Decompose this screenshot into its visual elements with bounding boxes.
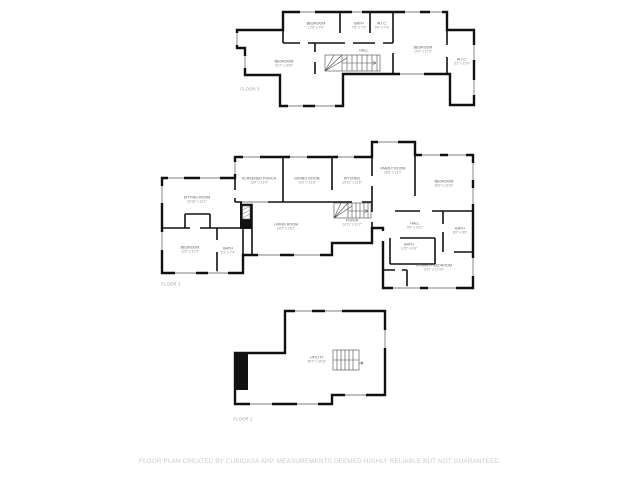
room-name: HALL [359, 49, 368, 54]
room-label-bath3: BATH 7'6" x 7'6" [352, 22, 366, 31]
room-dims: 5'1" x 7'4" [221, 251, 235, 255]
room-label-bedroom-small: BEDROOM 12'6" x 7'6" [307, 22, 326, 31]
room-dims: 5'5" x 7'4" [375, 26, 389, 30]
room-label-primary-bedroom: PRIMARY BEDROOM 24'1" x 17'10" [416, 264, 452, 273]
room-label-bath-right: BATH 8'6" x 9'9" [453, 227, 467, 236]
floor1-label: FLOOR 1 [233, 417, 252, 422]
room-label-wic-small: W.I.C. 5'5" x 7'4" [375, 22, 389, 31]
chimney-icon-floor1 [236, 353, 248, 390]
floor2-label: FLOOR 2 [161, 282, 180, 287]
room-label-family-room: FAMILY ROOM 16'9" x 21'1" [380, 167, 405, 176]
room-label-utility: UTILITY 36'7" x 24'11" [307, 356, 327, 365]
room-label-wic-right3: W.I.C. 5'1" x 10'9" [454, 58, 470, 67]
room-dims: 13'2" x 11'4" [181, 250, 199, 254]
room-dims: 15'10" x 12'1" [187, 200, 207, 204]
room-dims: 12'9" x 4'6" [401, 247, 417, 251]
room-label-hall2: HALL 8'0" x 4'11" [407, 222, 423, 231]
room-label-bath-center: BATH 12'9" x 4'6" [401, 243, 417, 252]
room-dims: 24'1" x 17'10" [424, 268, 444, 272]
room-label-bedroom-sw: BEDROOM 13'2" x 11'4" [181, 246, 200, 255]
stairs-icon-floor1 [333, 350, 363, 370]
floorplan-drawing [0, 0, 640, 480]
room-label-foyer: FOYER 10'11" x 11'2" [342, 219, 361, 228]
stairs-icon-floor3 [325, 55, 380, 71]
room-dims: 16'3" x 16'11" [434, 184, 454, 188]
room-dims: 21'2" x 20'6" [275, 64, 293, 68]
room-dims: 13'2" x 11'8" [298, 181, 316, 185]
room-dims: 36'7" x 24'11" [307, 360, 327, 364]
room-label-hall3: HALL [359, 49, 368, 54]
attribution-text: FLOOR PLAN CREATED BY CUBICASA APP. MEAS… [139, 458, 501, 465]
room-dims: 16'9" x 21'1" [384, 171, 402, 175]
stairs-icon-floor2 [334, 203, 371, 218]
room-dims: 7'6" x 7'6" [352, 26, 366, 30]
room-dims: 8'6" x 9'9" [453, 231, 467, 235]
room-label-bath-left: BATH 5'1" x 7'4" [221, 247, 235, 256]
room-label-bedroom-ne: BEDROOM 16'3" x 16'11" [434, 180, 454, 189]
room-dims: 10'11" x 11'2" [342, 223, 361, 227]
room-label-bedroom-left3: BEDROOM 21'2" x 20'6" [275, 60, 294, 69]
chimney-icon-floor2 [240, 202, 252, 229]
room-label-dining-room: DINING ROOM 13'2" x 11'8" [294, 177, 319, 186]
room-dims: 14'2" x 17'0" [414, 50, 432, 54]
room-dims: 10'11" x 11'6" [342, 181, 361, 185]
room-label-kitchen: KITCHEN 10'11" x 11'6" [342, 177, 361, 186]
room-dims: 20'2" x 15'2" [277, 227, 295, 231]
room-dims: 8'0" x 4'11" [407, 226, 423, 230]
floorplan-page: BEDROOM 12'6" x 7'6" BATH 7'6" x 7'6" W.… [0, 0, 640, 480]
room-label-screened-porch: SCREENED PORCH 13'4" x 11'4" [242, 177, 276, 186]
room-dims: 13'4" x 11'4" [250, 181, 268, 185]
room-label-bedroom-right3: BEDROOM 14'2" x 17'0" [414, 46, 433, 55]
room-dims: 12'6" x 7'6" [308, 26, 324, 30]
room-label-living-room: LIVING ROOM 20'2" x 15'2" [274, 223, 298, 232]
room-dims: 5'1" x 10'9" [454, 62, 470, 66]
room-label-sitting-room: SITTING ROOM 15'10" x 12'1" [184, 196, 211, 205]
floor3-label: FLOOR 3 [240, 87, 259, 92]
